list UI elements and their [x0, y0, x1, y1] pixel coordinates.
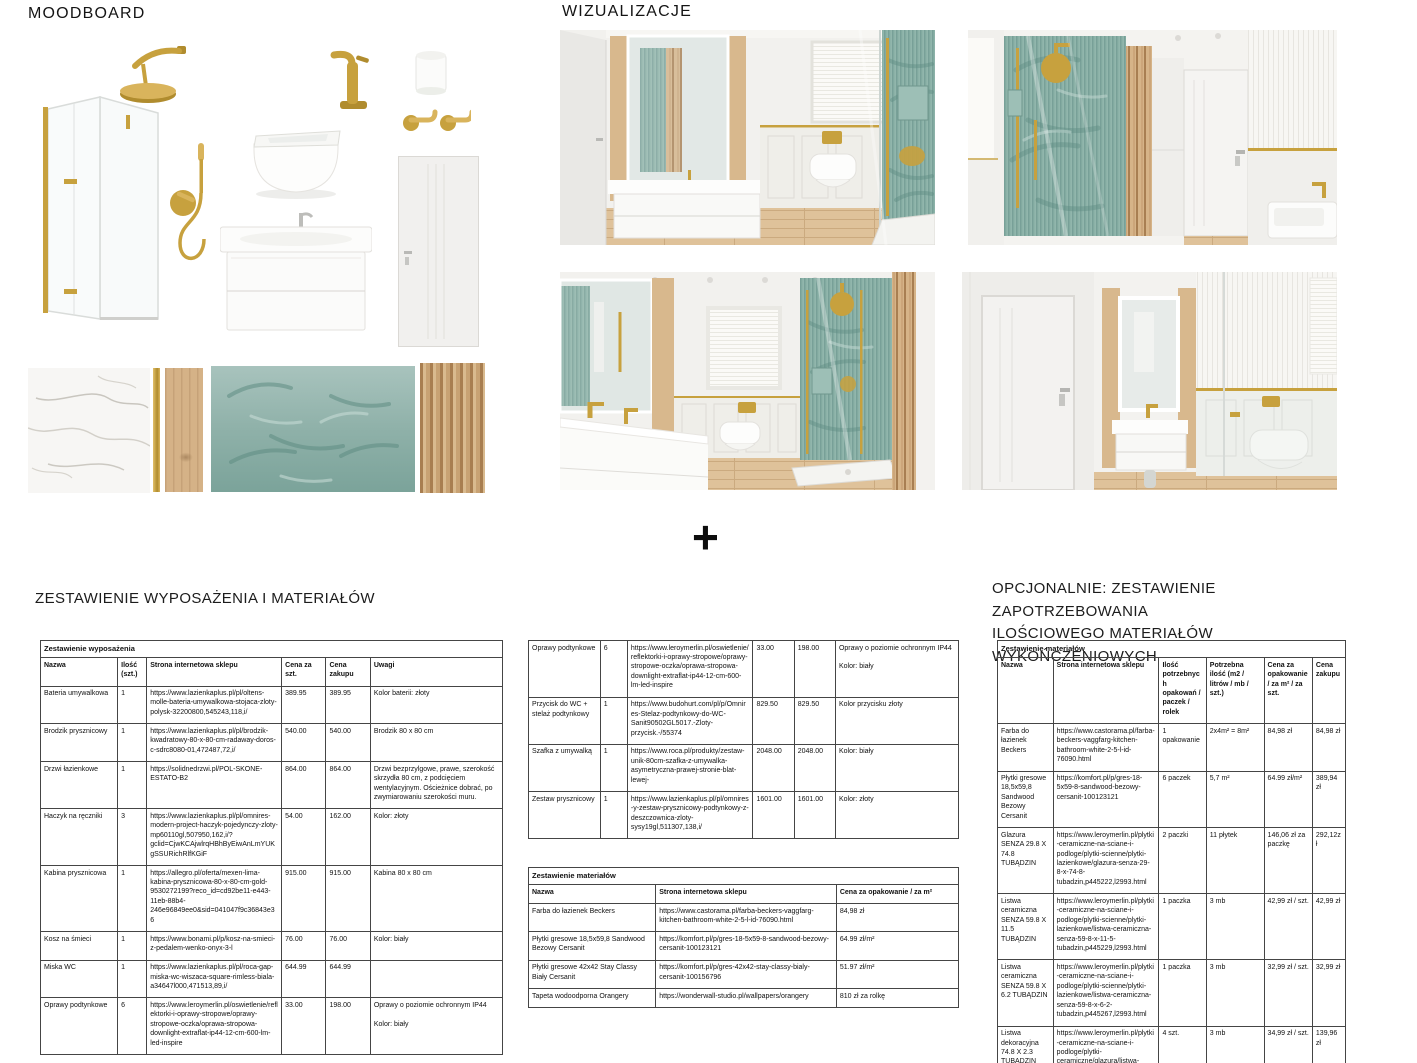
table-row: Zestaw prysznicowy1https://www.lazienkap… — [529, 792, 959, 839]
towel-hooks-drawing — [401, 105, 471, 133]
table-cell: Listwa dekoracyjna 74.8 X 2.3 TUBĄDZIN A… — [998, 1026, 1054, 1063]
table-cell: 829.50 — [794, 697, 835, 744]
table-cell: Bateria umywalkowa — [41, 686, 118, 724]
towel-hooks-image — [401, 105, 471, 133]
column-header: Nazwa — [529, 885, 656, 904]
table-cell: 3 mb — [1206, 1026, 1264, 1063]
vanity-with-basin-image — [220, 211, 372, 339]
table-cell: Kabina 80 x 80 cm — [370, 866, 502, 932]
column-header: Uwagi — [370, 658, 502, 686]
column-header: Potrzebna ilość (m2 / litrów / mb / szt.… — [1206, 658, 1264, 724]
materials-table: Zestawienie materiałówNazwaStrona intern… — [528, 867, 959, 1008]
table-cell: 915.00 — [326, 866, 370, 932]
table-cell: 389,94 zł — [1312, 771, 1345, 828]
table-cell: Brodzik prysznicowy — [41, 724, 118, 762]
table-cell: Oprawy podtynkowe — [529, 641, 601, 698]
table-cell: 292,12zł — [1312, 828, 1345, 894]
table-cell: https://www.castorama.pl/farba-beckers-v… — [656, 904, 837, 932]
table-cell: 139,96 zł — [1312, 1026, 1345, 1063]
viz4-scene — [962, 272, 1337, 490]
moodboard-title: MOODBOARD — [28, 5, 145, 23]
table-cell: 1 — [600, 792, 627, 839]
table-row: Listwa ceramiczna SENZA 59.8 X 11.5 TUBĄ… — [998, 894, 1346, 960]
table-row: Glazura SENZA 29.8 X 74.8 TUBĄDZINhttps:… — [998, 828, 1346, 894]
column-header: Cena za opakowanie / za m² / za szt. — [1264, 658, 1312, 724]
table-cell: Kolor: biały — [370, 932, 502, 960]
table-cell: 829.50 — [753, 697, 794, 744]
table-cell: 34,99 zł / szt. — [1264, 1026, 1312, 1063]
table-cell: 162.00 — [326, 809, 370, 866]
table-cell: 33.00 — [753, 641, 794, 698]
data-table: Oprawy podtynkowe6https://www.leroymerli… — [528, 640, 959, 839]
table-row: Płytki gresowe 42x42 Stay Classy Biały C… — [529, 960, 959, 988]
table-cell: 2048.00 — [794, 744, 835, 791]
ceiling-light-image — [413, 48, 449, 98]
table-cell: 42,99 zł / szt. — [1264, 894, 1312, 960]
table-cell: Brodzik 80 x 80 cm — [370, 724, 502, 762]
table-cell: https://www.leroymerlin.pl/plytki-cerami… — [1053, 894, 1159, 960]
table-cell: 6 — [118, 998, 147, 1055]
table-cell: 1601.00 — [753, 792, 794, 839]
table-cell: 3 mb — [1206, 960, 1264, 1026]
visualization-3 — [560, 272, 935, 490]
table-cell: 810 zł za rolkę — [836, 989, 958, 1008]
table-cell: 6 paczek — [1159, 771, 1206, 828]
table-cell: 1 — [118, 762, 147, 809]
table-cell: 11 płytek — [1206, 828, 1264, 894]
table-row: Brodzik prysznicowy1https://www.lazienka… — [41, 724, 503, 762]
table-cell: 1 opakowanie — [1159, 724, 1206, 771]
table-cell: Oprawy o poziomie ochronnym IP44 Kolor: … — [835, 641, 958, 698]
table-row: Drzwi łazienkowe1https://solidnedrzwi.pl… — [41, 762, 503, 809]
rain-shower-drawing — [115, 40, 190, 118]
table-cell: https://wonderwall-studio.pl/wallpapers/… — [656, 989, 837, 1008]
table-cell: https://komfort.pl/p/gres-42x42-stay-cla… — [656, 960, 837, 988]
table-cell: Haczyk na ręczniki — [41, 809, 118, 866]
table-cell: 64.99 zł/m² — [836, 932, 958, 960]
table-row: Listwa dekoracyjna 74.8 X 2.3 TUBĄDZIN A… — [998, 1026, 1346, 1063]
wallpaper-swatch-drawing — [211, 366, 415, 492]
rain-shower-head-image — [115, 40, 190, 118]
table-cell: 84,98 zł — [836, 904, 958, 932]
column-header: Cena za szt. — [282, 658, 326, 686]
table-cell: 864.00 — [326, 762, 370, 809]
table-cell: 1 paczka — [1159, 960, 1206, 1026]
table-title-row: Zestawienie materiałów — [529, 868, 959, 885]
data-table: Zestawienie wyposażeniaNazwaIlość (szt.)… — [40, 640, 503, 1055]
column-header: Nazwa — [998, 658, 1054, 724]
table-cell: https://www.lazienkaplus.pl/pl/omnires-y… — [627, 792, 753, 839]
column-header: Ilość (szt.) — [118, 658, 147, 686]
table-cell: 1 paczka — [1159, 894, 1206, 960]
table-cell: 644.99 — [326, 960, 370, 998]
table-cell: Kolor: złoty — [370, 809, 502, 866]
table-row: Płytki gresowe 18,5x59,8 Sandwood Bezowy… — [529, 932, 959, 960]
gold-strip-swatch — [153, 368, 160, 492]
equipment-section-heading: ZESTAWIENIE WYPOSAŻENIA I MATERIAŁÓW — [35, 588, 375, 611]
design-board-page: MOODBOARD WIZUALIZACJE — [0, 0, 1417, 1063]
basin-faucet-drawing — [323, 46, 381, 112]
viz3-scene — [560, 272, 935, 490]
column-header: Strona internetowa sklepu — [1053, 658, 1159, 724]
plus-divider: + — [692, 514, 719, 560]
table-cell: 198.00 — [794, 641, 835, 698]
table-cell: 32,99 zł — [1312, 960, 1345, 1026]
table-cell: 389.95 — [326, 686, 370, 724]
visualizations-title: WIZUALIZACJE — [562, 3, 692, 21]
table-row: Oprawy podtynkowe6https://www.leroymerli… — [529, 641, 959, 698]
table-cell: 54.00 — [282, 809, 326, 866]
table-cell: 3 mb — [1206, 894, 1264, 960]
wood-swatch — [165, 368, 203, 492]
hand-shower-drawing — [168, 143, 216, 281]
viz2-scene — [968, 30, 1337, 245]
table-cell: 864.00 — [282, 762, 326, 809]
table-cell: 1 — [600, 697, 627, 744]
table-cell: Drzwi łazienkowe — [41, 762, 118, 809]
table-cell: https://www.leroymerlin.pl/oswietlenie/r… — [627, 641, 753, 698]
materials-quantity-table: Zestawienie materiałówNazwaStrona intern… — [997, 640, 1346, 1063]
table-cell: 1 — [600, 744, 627, 791]
visualization-1 — [560, 30, 935, 245]
table-cell: https://www.leroymerlin.pl/plytki-cerami… — [1053, 828, 1159, 894]
table-cell: 2x4m² = 8m² — [1206, 724, 1264, 771]
table-cell: Drzwi bezprzylgowe, prawe, szerokość skr… — [370, 762, 502, 809]
table-cell: Kolor przycisku złoty — [835, 697, 958, 744]
table-cell: https://www.leroymerlin.pl/plytki-cerami… — [1053, 960, 1159, 1026]
table-cell — [370, 960, 502, 998]
table-cell: 1 — [118, 960, 147, 998]
table-cell: 644.99 — [282, 960, 326, 998]
column-header: Nazwa — [41, 658, 118, 686]
table-cell: https://www.leroymerlin.pl/plytki-cerami… — [1053, 1026, 1159, 1063]
table-cell: 389.95 — [282, 686, 326, 724]
toilet-drawing — [248, 126, 346, 200]
table-row: Farba do łazienek Beckershttps://www.cas… — [998, 724, 1346, 771]
table-cell: https://www.lazienkaplus.pl/pl/brodzik-k… — [147, 724, 282, 762]
visualization-2 — [968, 30, 1337, 245]
table-cell: https://www.lazienkaplus.pl/pl/omnires-m… — [147, 809, 282, 866]
table-cell: Listwa ceramiczna SENZA 59.8 X 11.5 TUBĄ… — [998, 894, 1054, 960]
table-cell: 2 paczki — [1159, 828, 1206, 894]
table-cell: Kolor: biały — [835, 744, 958, 791]
visualization-4 — [962, 272, 1337, 490]
shower-cabin-image — [40, 93, 163, 325]
hand-shower-mixer-image — [168, 143, 216, 281]
table-cell: https://www.lazienkaplus.pl/pl/roca-gap-… — [147, 960, 282, 998]
table-cell: https://www.leroymerlin.pl/oswietlenie/r… — [147, 998, 282, 1055]
table-cell: Kolor baterii: złoty — [370, 686, 502, 724]
table-cell: Kabina prysznicowa — [41, 866, 118, 932]
table-cell: 84,98 zł — [1312, 724, 1345, 771]
table-cell: 540.00 — [282, 724, 326, 762]
interior-door-image — [398, 156, 479, 347]
ceiling-light-drawing — [413, 48, 449, 98]
table-row: Płytki gresowe 18,5x59,8 Sandwood Bezowy… — [998, 771, 1346, 828]
wall-hung-toilet-image — [248, 126, 346, 200]
table-cell: Miska WC — [41, 960, 118, 998]
table-header-row: NazwaStrona internetowa sklepuIlość potr… — [998, 658, 1346, 724]
table-header-row: NazwaStrona internetowa sklepuCena za op… — [529, 885, 959, 904]
table-row: Listwa ceramiczna SENZA 59.8 X 6.2 TUBĄD… — [998, 960, 1346, 1026]
table-row: Szafka z umywalką1https://www.roca.pl/pr… — [529, 744, 959, 791]
tropical-wallpaper-swatch — [211, 366, 415, 492]
basin-faucet-image — [323, 46, 381, 112]
table-row: Kosz na śmieci1https://www.bonami.pl/p/k… — [41, 932, 503, 960]
table-cell: https://www.budohurt.com/pl/p/Omnires-St… — [627, 697, 753, 744]
table-row: Tapeta wodoodporna Orangeryhttps://wonde… — [529, 989, 959, 1008]
table-cell: 4 szt. — [1159, 1026, 1206, 1063]
column-header: Ilość potrzebnych opakowań / paczek / ro… — [1159, 658, 1206, 724]
column-header: Strona internetowa sklepu — [656, 885, 837, 904]
table-cell: Kosz na śmieci — [41, 932, 118, 960]
table-cell: Oprawy o poziomie ochronnym IP44 Kolor: … — [370, 998, 502, 1055]
table-cell: 540.00 — [326, 724, 370, 762]
table-cell: 915.00 — [282, 866, 326, 932]
table-row: Przycisk do WC + stelaż podtynkowy1https… — [529, 697, 959, 744]
table-cell: 198.00 — [326, 998, 370, 1055]
table-cell: https://www.roca.pl/produkty/zestaw-unik… — [627, 744, 753, 791]
table-row: Oprawy podtynkowe6https://www.leroymerli… — [41, 998, 503, 1055]
vanity-drawing — [220, 211, 372, 339]
table-cell: Listwa ceramiczna SENZA 59.8 X 6.2 TUBĄD… — [998, 960, 1054, 1026]
table-cell: Farba do łazienek Beckers — [529, 904, 656, 932]
table-cell: Zestaw prysznicowy — [529, 792, 601, 839]
table-cell: Przycisk do WC + stelaż podtynkowy — [529, 697, 601, 744]
table-cell: 1 — [118, 866, 147, 932]
table-cell: Oprawy podtynkowe — [41, 998, 118, 1055]
table-cell: https://solidnedrzwi.pl/POL-SKONE-ESTATO… — [147, 762, 282, 809]
column-header: Cena za opakowanie / za m² — [836, 885, 958, 904]
table-cell: 76.00 — [326, 932, 370, 960]
table-cell: Szafka z umywalką — [529, 744, 601, 791]
table-title: Zestawienie wyposażenia — [41, 641, 503, 658]
column-header: Cena zakupu — [1312, 658, 1345, 724]
table-title-row: Zestawienie wyposażenia — [41, 641, 503, 658]
table-cell: Płytki gresowe 18,5x59,8 Sandwood Bezowy… — [529, 932, 656, 960]
column-header: Cena zakupu — [326, 658, 370, 686]
table-cell: https://allegro.pl/oferta/mexen-lima-kab… — [147, 866, 282, 932]
table-cell: Tapeta wodoodporna Orangery — [529, 989, 656, 1008]
table-cell: 1 — [118, 686, 147, 724]
table-cell: https://komfort.pl/p/gres-18-5x59-8-sand… — [656, 932, 837, 960]
table-title: Zestawienie materiałów — [529, 868, 959, 885]
table-cell: 1 — [118, 932, 147, 960]
table-cell: https://www.bonami.pl/p/kosz-na-smieci-z… — [147, 932, 282, 960]
table-cell: https://www.castorama.pl/farba-beckers-v… — [1053, 724, 1159, 771]
table-cell: 84,98 zł — [1264, 724, 1312, 771]
equipment-table-continued: Oprawy podtynkowe6https://www.leroymerli… — [528, 640, 959, 839]
table-cell: 3 — [118, 809, 147, 866]
data-table: Zestawienie materiałówNazwaStrona intern… — [997, 640, 1346, 1063]
table-row: Miska WC1https://www.lazienkaplus.pl/pl/… — [41, 960, 503, 998]
table-cell: 76.00 — [282, 932, 326, 960]
table-cell: Kolor: złoty — [835, 792, 958, 839]
table-cell: Glazura SENZA 29.8 X 74.8 TUBĄDZIN — [998, 828, 1054, 894]
table-cell: Płytki gresowe 18,5x59,8 Sandwood Bezowy… — [998, 771, 1054, 828]
table-row: Haczyk na ręczniki3https://www.lazienkap… — [41, 809, 503, 866]
table-cell: 51.97 zł/m² — [836, 960, 958, 988]
marble-swatch — [28, 368, 150, 493]
column-header: Strona internetowa sklepu — [147, 658, 282, 686]
table-row: Farba do łazienek Beckershttps://www.cas… — [529, 904, 959, 932]
table-cell: https://www.lazienkaplus.pl/pl/oltens-mo… — [147, 686, 282, 724]
table-row: Bateria umywalkowa1https://www.lazienkap… — [41, 686, 503, 724]
table-title: Zestawienie materiałów — [998, 641, 1346, 658]
data-table: Zestawienie materiałówNazwaStrona intern… — [528, 867, 959, 1008]
table-cell: 5,7 m² — [1206, 771, 1264, 828]
wood-slats-swatch — [420, 363, 485, 493]
table-cell: 42,99 zł — [1312, 894, 1345, 960]
table-cell: 33.00 — [282, 998, 326, 1055]
table-cell: 6 — [600, 641, 627, 698]
table-cell: 2048.00 — [753, 744, 794, 791]
table-cell: Farba do łazienek Beckers — [998, 724, 1054, 771]
table-header-row: NazwaIlość (szt.)Strona internetowa skle… — [41, 658, 503, 686]
table-cell: 64.99 zł/m² — [1264, 771, 1312, 828]
table-cell: https://komfort.pl/p/gres-18-5x59-8-sand… — [1053, 771, 1159, 828]
table-cell: Płytki gresowe 42x42 Stay Classy Biały C… — [529, 960, 656, 988]
interior-door-drawing — [398, 156, 479, 347]
marble-swatch-drawing — [28, 368, 150, 493]
table-cell: 146,06 zł za paczkę — [1264, 828, 1312, 894]
shower-cabin-drawing — [40, 93, 163, 325]
table-cell: 1601.00 — [794, 792, 835, 839]
table-cell: 1 — [118, 724, 147, 762]
table-row: Kabina prysznicowa1https://allegro.pl/of… — [41, 866, 503, 932]
table-cell: 32,99 zł / szt. — [1264, 960, 1312, 1026]
viz1-scene — [560, 30, 935, 245]
equipment-table: Zestawienie wyposażeniaNazwaIlość (szt.)… — [40, 640, 503, 1055]
table-title-row: Zestawienie materiałów — [998, 641, 1346, 658]
